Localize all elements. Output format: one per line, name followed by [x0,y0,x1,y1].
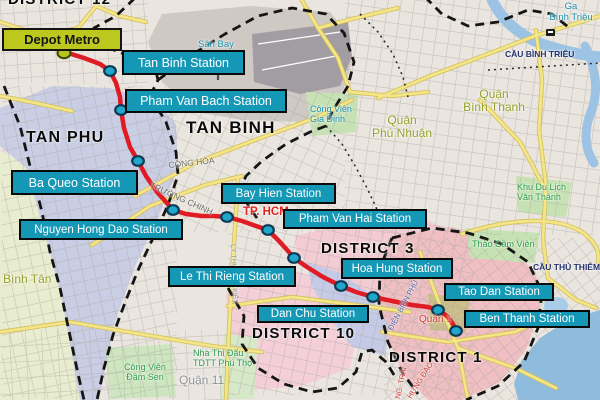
district-label-district-1: DISTRICT 1 [389,349,483,366]
place-label-cau-binh-trieu: CẦU BÌNH TRIỆU [505,50,574,60]
station-marker-tan-binh[interactable] [104,66,116,76]
station-marker-le-thi-rieng[interactable] [288,253,300,263]
place-label-thao-cam-vien: Thảo Cầm Viên [472,239,534,249]
station-callout-pham-van-hai[interactable]: Pham Van Hai Station [283,209,427,229]
station-callout-le-thi-rieng[interactable]: Le Thi Rieng Station [168,266,296,287]
station-marker-pham-van-hai[interactable] [262,225,274,235]
district-label-district-10: DISTRICT 10 [252,325,355,342]
station-marker-bay-hien[interactable] [221,212,233,222]
station-marker-ba-queo[interactable] [132,156,144,166]
place-label-cong-vien-dam-sen: Công Viên Đầm Sen [118,362,172,382]
place-label-tp-hcm: TP. HCM [243,206,289,219]
station-callout-tan-binh[interactable]: Tan Binh Station [122,50,245,75]
place-label-quan-binh-thanh: Quận Bình Thạnh [462,88,526,115]
place-label-cau-thu-thiem: CẦU THỦ THIÊM [533,263,600,273]
place-label-cong-vien-gia-dinh: Công Viên Gia Định [310,104,352,124]
station-callout-dan-chu[interactable]: Dan Chu Station [257,305,369,323]
metro-map: Sân BayGa Bình TriệuCẦU BÌNH TRIỆUQuận B… [0,0,600,400]
station-callout-bay-hien[interactable]: Bay Hien Station [221,183,336,204]
place-label-ga-binh-trieu: Ga Bình Triệu [546,2,596,23]
depot-callout[interactable]: Depot Metro [2,28,122,51]
station-marker-nguyen-hong-dao[interactable] [167,205,179,215]
station-callout-nguyen-hong-dao[interactable]: Nguyen Hong Dao Station [19,219,183,240]
place-label-binh-tan: Bình Tân [3,273,51,286]
station-marker-dan-chu[interactable] [367,292,379,302]
station-callout-hoa-hung[interactable]: Hoa Hung Station [341,258,453,279]
district-label-district-3: DISTRICT 3 [321,240,415,257]
place-label-quan-1: Quận 1 [419,314,452,325]
station-marker-ben-thanh[interactable] [450,326,462,336]
station-callout-ba-queo[interactable]: Ba Queo Station [11,170,138,195]
place-label-quan-11: Quận 11 [179,374,224,387]
district-label-tan-phu: TAN PHU [26,129,104,147]
station-callout-ben-thanh[interactable]: Ben Thanh Station [464,310,590,328]
station-marker-hoa-hung[interactable] [335,281,347,291]
place-label-nha-thi-dau-phu-tho: Nhà Thi Đấu TDTT Phú Thọ [193,348,252,368]
station-callout-pham-van-bach[interactable]: Pham Van Bach Station [125,89,287,113]
district-label-district-12: DISTRICT 12 [8,0,111,8]
place-label-khu-du-lich-van-thanh: Khu Du Lịch Văn Thánh [517,182,566,202]
train-station-icon [546,29,555,36]
station-callout-tao-dan[interactable]: Tao Dan Station [444,283,554,301]
place-label-quan-phu-nhuan: Quận Phú Nhuận [362,114,442,141]
district-label-tan-binh: TAN BINH [186,118,276,138]
